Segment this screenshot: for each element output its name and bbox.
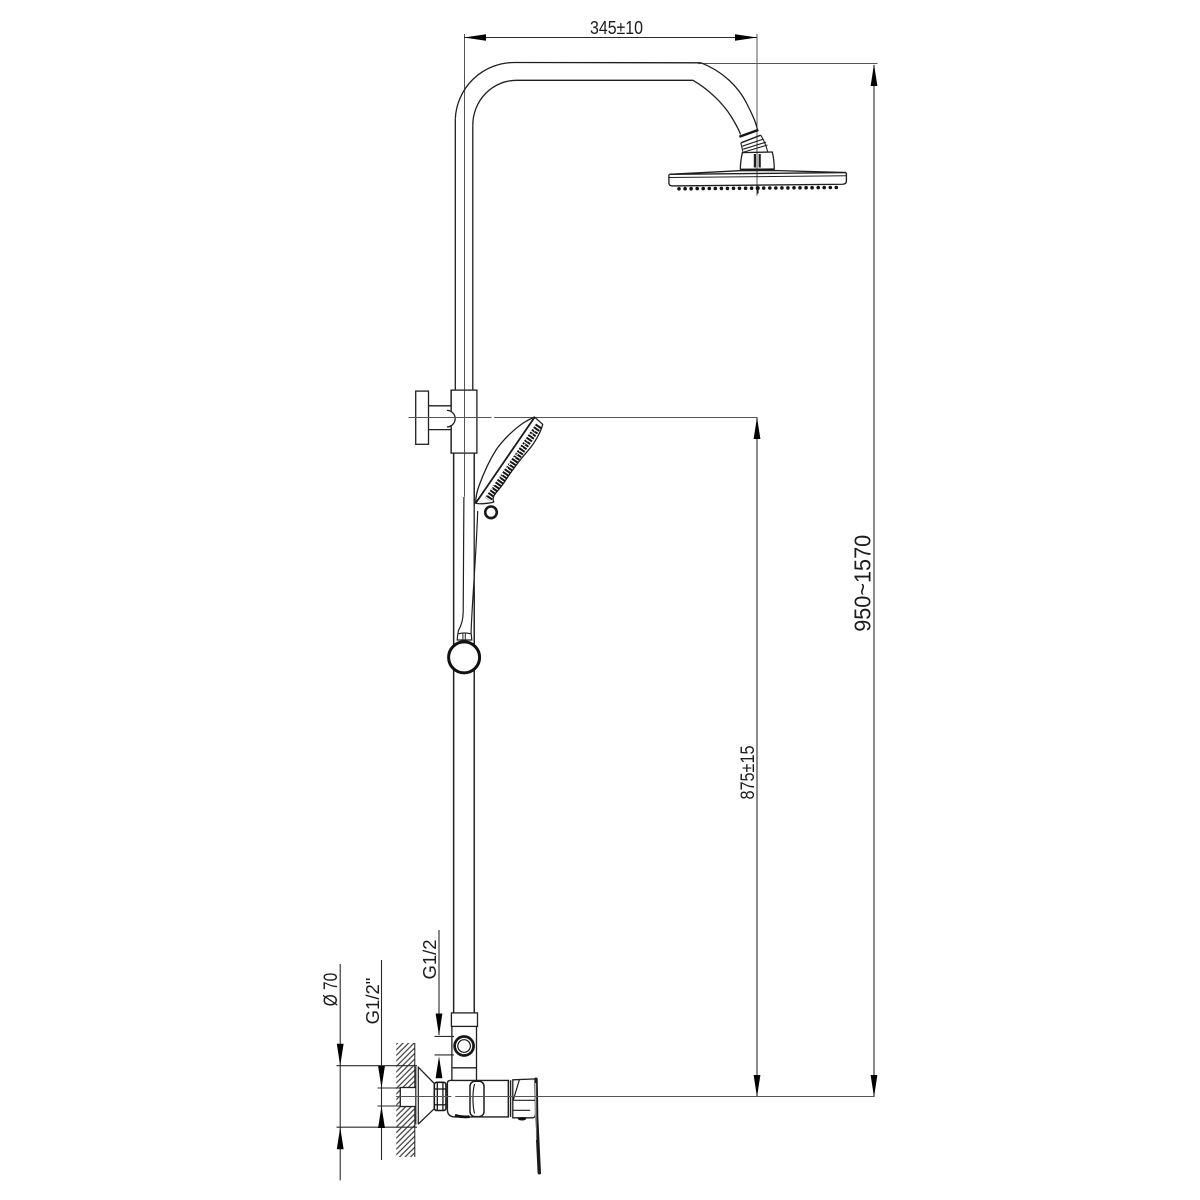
svg-text:Ø 70: Ø 70 xyxy=(321,973,342,1007)
svg-text:875±15: 875±15 xyxy=(737,745,759,799)
svg-text:345±10: 345±10 xyxy=(590,18,643,38)
svg-text:950~1570: 950~1570 xyxy=(849,535,875,632)
svg-text:G1/2": G1/2" xyxy=(362,978,383,1025)
svg-text:G1/2: G1/2 xyxy=(419,939,440,979)
